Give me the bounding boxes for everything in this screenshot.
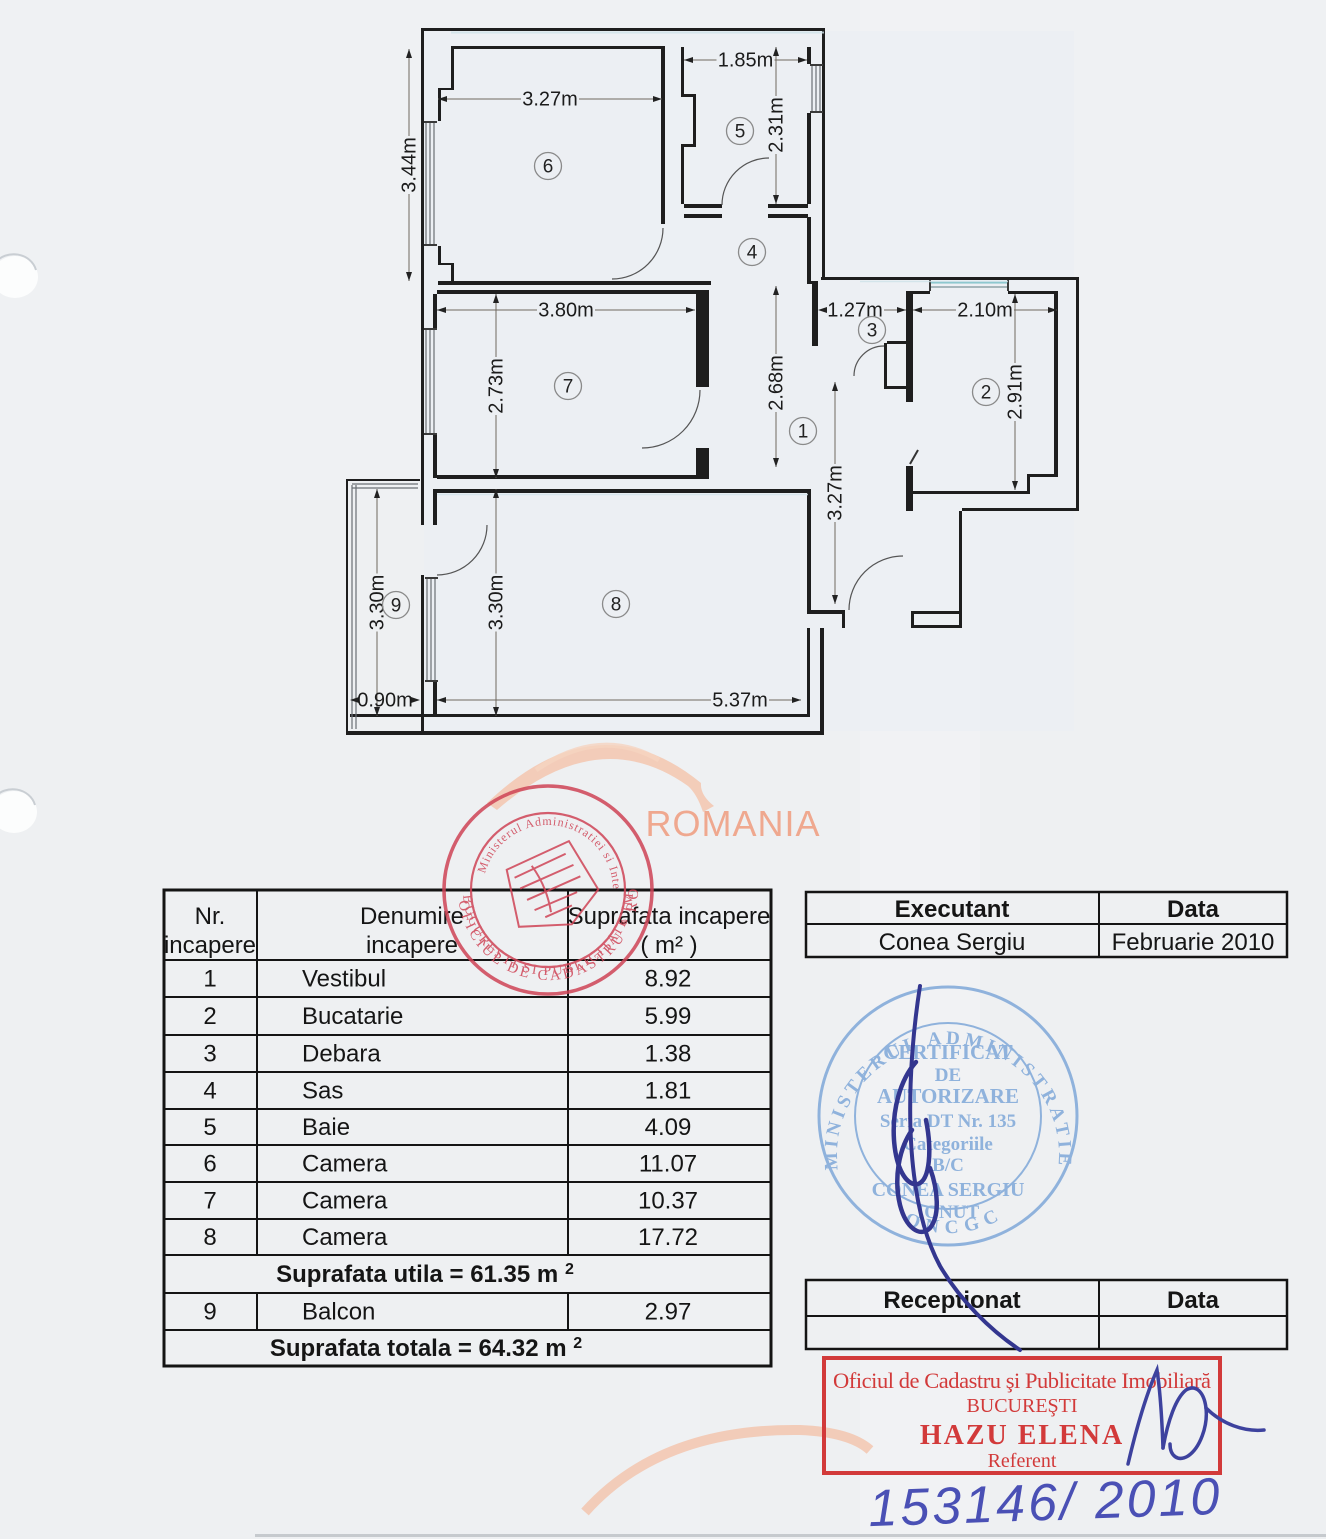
- svg-text:Suprafata totala = 64.32 m 2: Suprafata totala = 64.32 m 2: [270, 1335, 582, 1362]
- svg-text:7: 7: [203, 1188, 216, 1215]
- svg-text:9: 9: [391, 596, 402, 617]
- svg-text:10.37: 10.37: [638, 1188, 698, 1215]
- svg-text:Data: Data: [1167, 1287, 1220, 1314]
- svg-text:3.27m: 3.27m: [522, 89, 578, 111]
- svg-text:Suprafata incapere: Suprafata incapere: [568, 903, 771, 930]
- svg-text:Receptionat: Receptionat: [883, 1287, 1020, 1314]
- svg-text:B/C: B/C: [932, 1155, 964, 1176]
- svg-text:3.80m: 3.80m: [538, 300, 594, 322]
- svg-text:Vestibul: Vestibul: [302, 966, 386, 993]
- svg-text:8.92: 8.92: [645, 966, 692, 993]
- svg-text:3: 3: [867, 321, 878, 342]
- svg-text:Seria DT Nr. 135: Seria DT Nr. 135: [880, 1111, 1016, 1132]
- svg-text:2: 2: [981, 383, 992, 404]
- svg-text:153146/ 2010: 153146/ 2010: [867, 1468, 1223, 1538]
- svg-text:IONUT: IONUT: [917, 1202, 980, 1223]
- svg-text:Camera: Camera: [302, 1188, 388, 1215]
- svg-text:6: 6: [543, 157, 554, 178]
- svg-text:Balcon: Balcon: [302, 1299, 375, 1326]
- svg-text:DE: DE: [935, 1065, 961, 1086]
- svg-text:2.68m: 2.68m: [766, 355, 788, 411]
- svg-text:BUCUREŞTI: BUCUREŞTI: [966, 1395, 1077, 1417]
- svg-text:3.30m: 3.30m: [367, 575, 389, 631]
- svg-text:8: 8: [611, 595, 622, 616]
- svg-text:17.72: 17.72: [638, 1224, 698, 1251]
- svg-text:2.31m: 2.31m: [766, 97, 788, 153]
- svg-text:HAZU ELENA: HAZU ELENA: [920, 1420, 1124, 1451]
- svg-text:8: 8: [203, 1224, 216, 1251]
- svg-text:2: 2: [203, 1003, 216, 1030]
- svg-text:6: 6: [203, 1151, 216, 1178]
- svg-text:3.30m: 3.30m: [486, 575, 508, 631]
- svg-text:1: 1: [798, 422, 809, 443]
- svg-text:Suprafata utila = 61.35 m 2: Suprafata utila = 61.35 m 2: [276, 1261, 574, 1288]
- svg-text:Baie: Baie: [302, 1114, 350, 1141]
- svg-text:1.81: 1.81: [645, 1078, 692, 1105]
- svg-text:0.90m: 0.90m: [357, 690, 413, 712]
- svg-text:5.99: 5.99: [645, 1003, 692, 1030]
- svg-text:5.37m: 5.37m: [712, 690, 768, 712]
- svg-text:Februarie 2010: Februarie 2010: [1112, 929, 1275, 956]
- svg-text:4.09: 4.09: [645, 1114, 692, 1141]
- svg-text:7: 7: [563, 377, 574, 398]
- svg-text:Debara: Debara: [302, 1041, 381, 1068]
- svg-text:1.38: 1.38: [645, 1041, 692, 1068]
- svg-text:incapere: incapere: [164, 932, 256, 959]
- svg-text:Camera: Camera: [302, 1151, 388, 1178]
- svg-text:4: 4: [747, 243, 758, 264]
- svg-text:Executant: Executant: [895, 896, 1010, 923]
- svg-text:2.91m: 2.91m: [1005, 364, 1027, 420]
- svg-text:3.27m: 3.27m: [825, 465, 847, 521]
- svg-text:3: 3: [203, 1041, 216, 1068]
- svg-text:9: 9: [203, 1299, 216, 1326]
- svg-text:( m² ): ( m² ): [640, 932, 697, 959]
- svg-text:4: 4: [203, 1078, 216, 1105]
- svg-text:Nr.: Nr.: [195, 903, 226, 930]
- svg-text:3.44m: 3.44m: [399, 137, 421, 193]
- svg-text:Categoriile: Categoriile: [903, 1134, 993, 1155]
- svg-text:Conea Sergiu: Conea Sergiu: [879, 929, 1026, 956]
- svg-text:Bucatarie: Bucatarie: [302, 1003, 403, 1030]
- svg-text:5: 5: [203, 1114, 216, 1141]
- svg-text:Data: Data: [1167, 896, 1220, 923]
- svg-text:ROMANIA: ROMANIA: [645, 803, 820, 844]
- svg-text:2.97: 2.97: [645, 1299, 692, 1326]
- svg-text:5: 5: [735, 122, 746, 143]
- svg-text:1: 1: [203, 966, 216, 993]
- svg-text:Referent: Referent: [988, 1450, 1057, 1472]
- svg-text:11.07: 11.07: [639, 1151, 697, 1178]
- svg-text:Sas: Sas: [302, 1078, 343, 1105]
- svg-text:CERTIFICAT: CERTIFICAT: [883, 1040, 1013, 1064]
- svg-text:2.10m: 2.10m: [957, 300, 1013, 322]
- svg-text:CONEA SERGIU: CONEA SERGIU: [872, 1179, 1025, 1201]
- svg-text:incapere: incapere: [366, 932, 458, 959]
- svg-text:1.85m: 1.85m: [718, 50, 774, 72]
- svg-text:1.27m: 1.27m: [827, 300, 883, 322]
- svg-text:2.73m: 2.73m: [486, 358, 508, 414]
- svg-text:Camera: Camera: [302, 1224, 388, 1251]
